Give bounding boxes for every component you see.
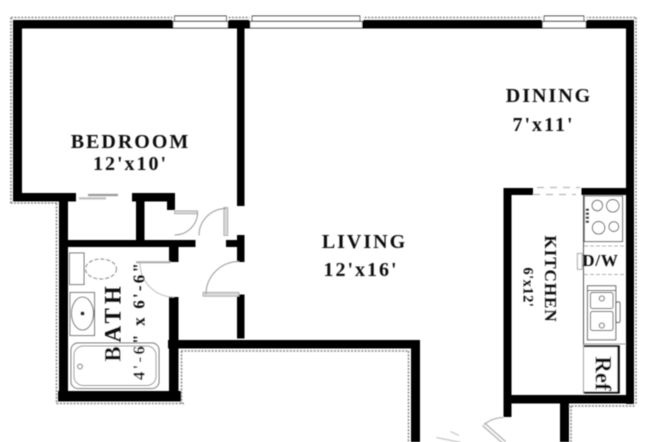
svg-text:BEDROOM: BEDROOM bbox=[71, 131, 191, 153]
svg-text:7'x11': 7'x11' bbox=[512, 114, 574, 136]
svg-text:6'x12': 6'x12' bbox=[520, 267, 536, 307]
svg-text:DINING: DINING bbox=[506, 85, 592, 107]
svg-text:12'x16': 12'x16' bbox=[323, 259, 398, 281]
svg-text:KITCHEN: KITCHEN bbox=[541, 235, 560, 322]
svg-text:D/W: D/W bbox=[582, 251, 618, 270]
svg-text:4'-6" x 6'-6": 4'-6" x 6'-6" bbox=[130, 261, 149, 380]
svg-text:LIVING: LIVING bbox=[322, 231, 407, 253]
svg-text:BATH: BATH bbox=[101, 282, 126, 361]
svg-text:Ref: Ref bbox=[591, 356, 616, 391]
svg-text:12'x10': 12'x10' bbox=[93, 153, 168, 175]
